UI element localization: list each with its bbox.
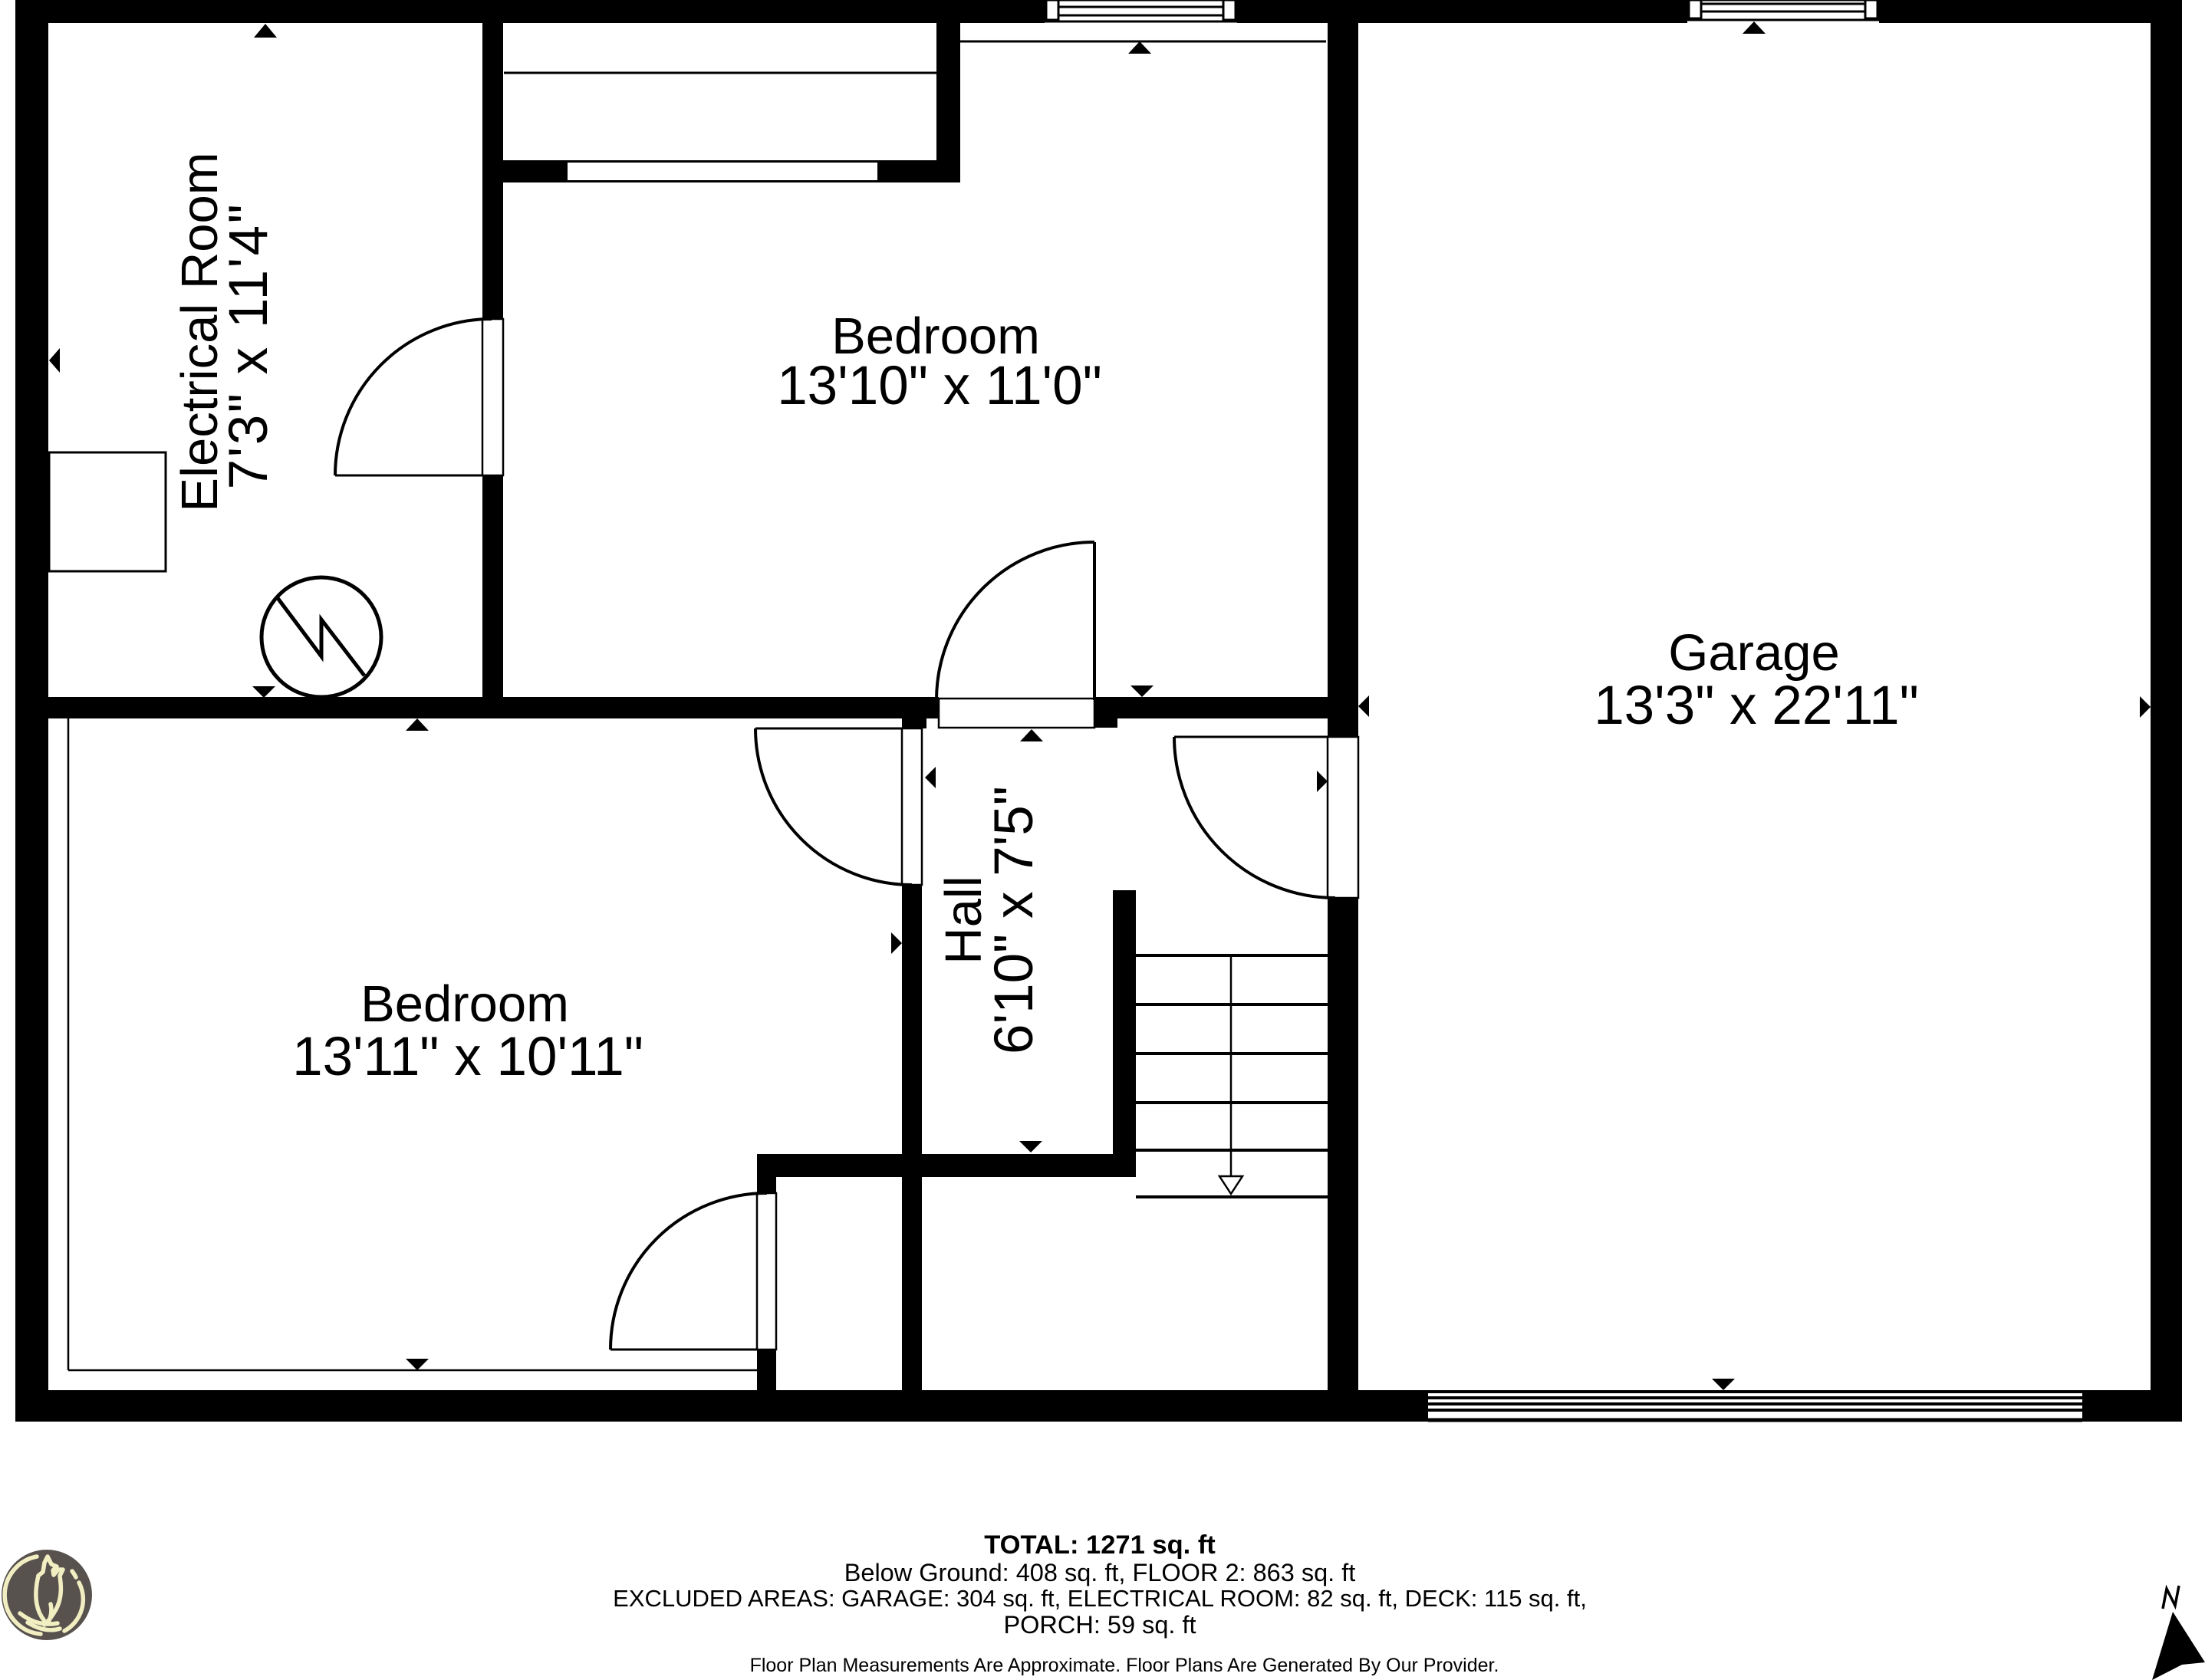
svg-text:6'10" x 7'5": 6'10" x 7'5" — [984, 786, 1045, 1054]
svg-text:Garage: Garage — [1668, 624, 1839, 682]
svg-text:13'3" x 22'11": 13'3" x 22'11" — [1594, 676, 1919, 736]
svg-text:Below Ground: 408 sq. ft, FLOO: Below Ground: 408 sq. ft, FLOOR 2: 863 s… — [844, 1559, 1356, 1586]
svg-text:Bedroom: Bedroom — [360, 975, 569, 1033]
svg-text:13'11" x 10'11": 13'11" x 10'11" — [292, 1027, 643, 1087]
svg-text:13'10" x 11'0": 13'10" x 11'0" — [777, 356, 1102, 416]
svg-text:PORCH: 59 sq. ft: PORCH: 59 sq. ft — [1003, 1611, 1196, 1639]
svg-text:TOTAL: 1271 sq. ft: TOTAL: 1271 sq. ft — [984, 1530, 1216, 1560]
svg-text:EXCLUDED AREAS: GARAGE: 304 sq: EXCLUDED AREAS: GARAGE: 304 sq. ft, ELEC… — [613, 1585, 1587, 1612]
svg-text:Floor Plan Measurements Are Ap: Floor Plan Measurements Are Approximate.… — [750, 1655, 1499, 1676]
svg-text:7'3" x 11'4": 7'3" x 11'4" — [219, 202, 279, 490]
